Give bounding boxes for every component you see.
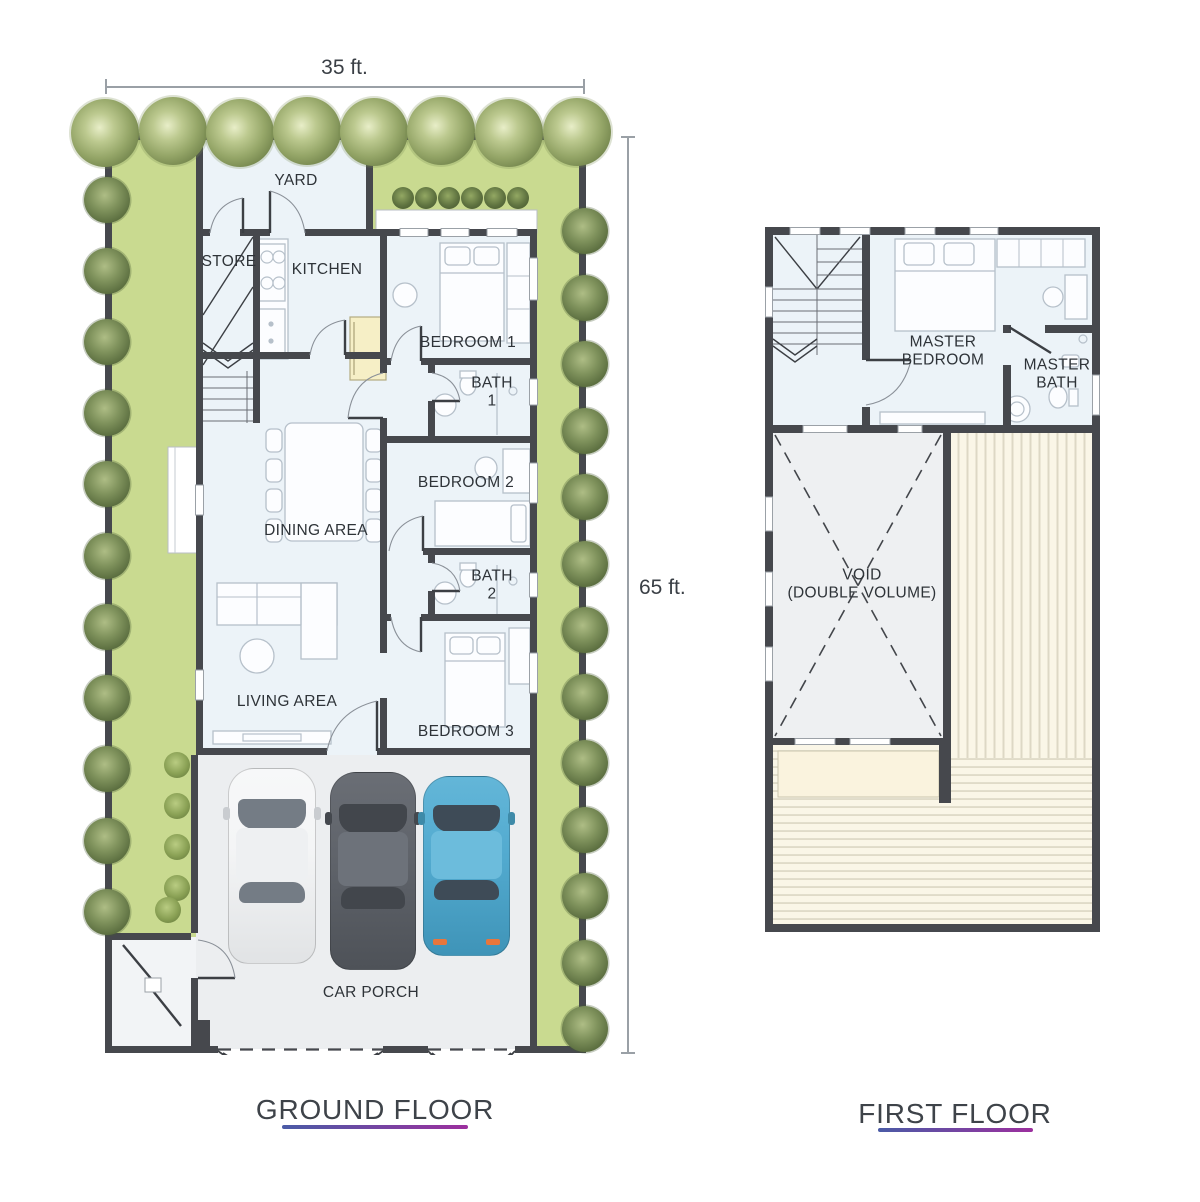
tv-console	[213, 731, 331, 744]
bush-icon	[562, 474, 608, 520]
room-label-void: VOID (DOUBLE VOLUME)	[787, 567, 936, 604]
bush-icon	[562, 873, 608, 919]
car-roof	[338, 832, 409, 885]
bush-icon	[484, 187, 506, 209]
room-label-bedroom3: BEDROOM 3	[418, 723, 514, 741]
tree-icon	[139, 97, 207, 165]
bush-icon	[562, 940, 608, 986]
car-rear-glass	[341, 887, 405, 909]
bush-icon	[164, 793, 190, 819]
bush-icon	[84, 746, 130, 792]
bush-icon	[155, 897, 181, 923]
car-white	[228, 768, 316, 964]
tree-icon	[475, 99, 543, 167]
car-blue	[423, 776, 510, 956]
car-windshield	[238, 799, 307, 828]
car-gray	[330, 772, 416, 970]
master-chair	[1043, 287, 1063, 307]
room-label-dining: DINING AREA	[264, 522, 368, 540]
master-desk	[1065, 275, 1087, 319]
dimension-line-horizontal	[105, 86, 584, 88]
room-label-living: LIVING AREA	[237, 693, 337, 711]
bush-icon	[507, 187, 529, 209]
tree-icon	[407, 97, 475, 165]
dimension-width-label: 35 ft.	[105, 56, 584, 80]
bush-icon	[84, 533, 130, 579]
gate-right	[428, 1051, 515, 1055]
first-floor-title: FIRST FLOOR	[755, 1098, 1155, 1130]
bush-icon	[562, 541, 608, 587]
bush-icon	[562, 807, 608, 853]
bush-icon	[84, 461, 130, 507]
car-windshield	[433, 805, 501, 832]
bush-icon	[84, 889, 130, 935]
tree-icon	[206, 99, 274, 167]
car-mirror	[418, 812, 425, 825]
bush-icon	[84, 177, 130, 223]
tree-icon	[340, 98, 408, 166]
bush-icon	[438, 187, 460, 209]
kitchen-sink	[258, 309, 285, 355]
cream-box	[778, 751, 939, 797]
room-label-yard: YARD	[274, 172, 317, 190]
room-label-bath2: BATH 2	[471, 568, 513, 605]
side-table1	[393, 283, 417, 307]
room-label-kitchen: KITCHEN	[292, 261, 362, 279]
dimension-tick	[105, 79, 107, 94]
bed-bench	[880, 412, 985, 424]
ground-floor-title-underline	[282, 1125, 468, 1129]
coffee-table	[240, 639, 274, 673]
bush-icon	[562, 674, 608, 720]
cabinet3	[509, 628, 530, 684]
bush-icon	[84, 818, 130, 864]
bush-icon	[84, 390, 130, 436]
car-mirror	[325, 812, 332, 825]
bush-icon	[461, 187, 483, 209]
bush-icon	[84, 604, 130, 650]
car-taillight	[486, 939, 500, 945]
bush-icon	[562, 1006, 608, 1052]
room-label-bedroom1: BEDROOM 1	[420, 334, 516, 352]
car-mirror	[314, 807, 321, 820]
bush-icon	[164, 834, 190, 860]
bush-icon	[562, 208, 608, 254]
bush-icon	[562, 740, 608, 786]
planter-box	[168, 447, 199, 553]
room-label-store: STORE	[202, 253, 257, 271]
bush-icon	[562, 408, 608, 454]
car-mirror	[223, 807, 230, 820]
bush-icon	[84, 319, 130, 365]
tree-icon	[543, 98, 611, 166]
gate-left	[218, 1051, 383, 1055]
bush-icon	[84, 248, 130, 294]
floor-plan-canvas: YARD STORE KITCHEN BEDROOM 1 BATH 1 BEDR…	[0, 0, 1200, 1202]
wardrobe1	[507, 243, 530, 343]
car-mirror	[508, 812, 515, 825]
bush-icon	[415, 187, 437, 209]
ground-floor-title: GROUND FLOOR	[175, 1094, 575, 1126]
car-rear-glass	[434, 880, 498, 900]
gates	[218, 1050, 515, 1056]
room-label-master-bedroom: MASTER BEDROOM	[902, 334, 985, 371]
room-label-bedroom2: BEDROOM 2	[418, 474, 514, 492]
car-roof	[431, 831, 502, 880]
first-floor-title-underline	[878, 1128, 1033, 1132]
bush-icon	[562, 607, 608, 653]
dimension-height-label: 65 ft.	[639, 576, 686, 600]
car-rear-glass	[239, 882, 304, 904]
room-label-carporch: CAR PORCH	[323, 984, 419, 1002]
deck-right	[951, 433, 1092, 758]
dimension-tick	[621, 136, 635, 138]
dimension-tick	[583, 79, 585, 94]
room-label-bath1: BATH 1	[471, 375, 513, 412]
dimension-tick	[621, 1052, 635, 1054]
car-roof	[236, 828, 308, 881]
bush-icon	[562, 275, 608, 321]
bush-icon	[84, 675, 130, 721]
bush-icon	[392, 187, 414, 209]
tree-icon	[273, 97, 341, 165]
room-label-master-bath: MASTER BATH	[1024, 357, 1091, 394]
bush-icon	[164, 752, 190, 778]
car-windshield	[339, 804, 406, 834]
bush-icon	[562, 341, 608, 387]
dimension-line-vertical	[627, 136, 629, 1053]
tree-icon	[71, 99, 139, 167]
car-taillight	[433, 939, 447, 945]
